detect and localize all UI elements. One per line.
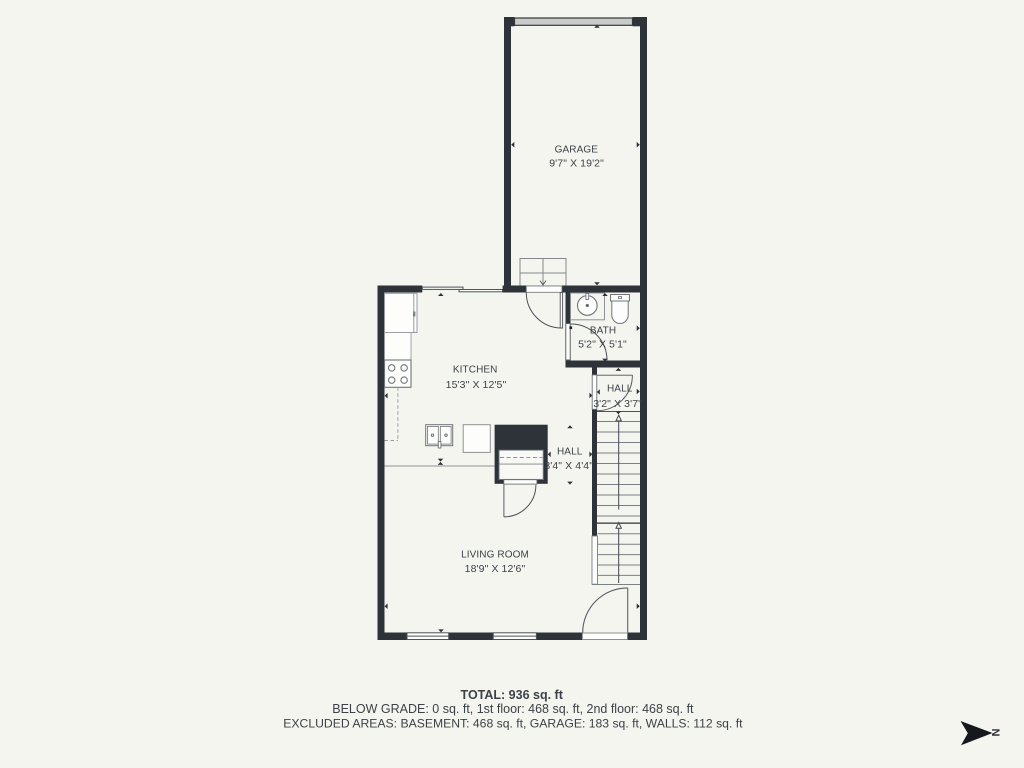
svg-text:HALL: HALL: [607, 384, 633, 395]
svg-text:15'3" X 12'5": 15'3" X 12'5": [446, 379, 507, 391]
svg-text:GARAGE: GARAGE: [555, 144, 599, 155]
svg-text:BATH: BATH: [590, 325, 616, 336]
svg-text:5'2" X 5'1": 5'2" X 5'1": [578, 339, 627, 351]
svg-text:EXCLUDED AREAS: BASEMENT: 468: EXCLUDED AREAS: BASEMENT: 468 sq. ft, GA…: [283, 717, 743, 731]
svg-text:N: N: [989, 729, 1001, 737]
svg-text:LIVING ROOM: LIVING ROOM: [461, 550, 529, 561]
svg-text:9'7" X 19'2": 9'7" X 19'2": [549, 158, 604, 170]
svg-text:BELOW GRADE: 0 sq. ft, 1st flo: BELOW GRADE: 0 sq. ft, 1st floor: 468 sq…: [332, 702, 694, 716]
svg-text:HALL: HALL: [557, 447, 583, 458]
svg-text:KITCHEN: KITCHEN: [453, 365, 498, 376]
svg-text:3'4" X 4'4": 3'4" X 4'4": [544, 460, 593, 472]
svg-text:TOTAL: 936 sq. ft: TOTAL: 936 sq. ft: [461, 688, 564, 702]
svg-text:18'9" X 12'6": 18'9" X 12'6": [465, 563, 526, 575]
svg-text:3'2" X 3'7": 3'2" X 3'7": [593, 398, 642, 410]
